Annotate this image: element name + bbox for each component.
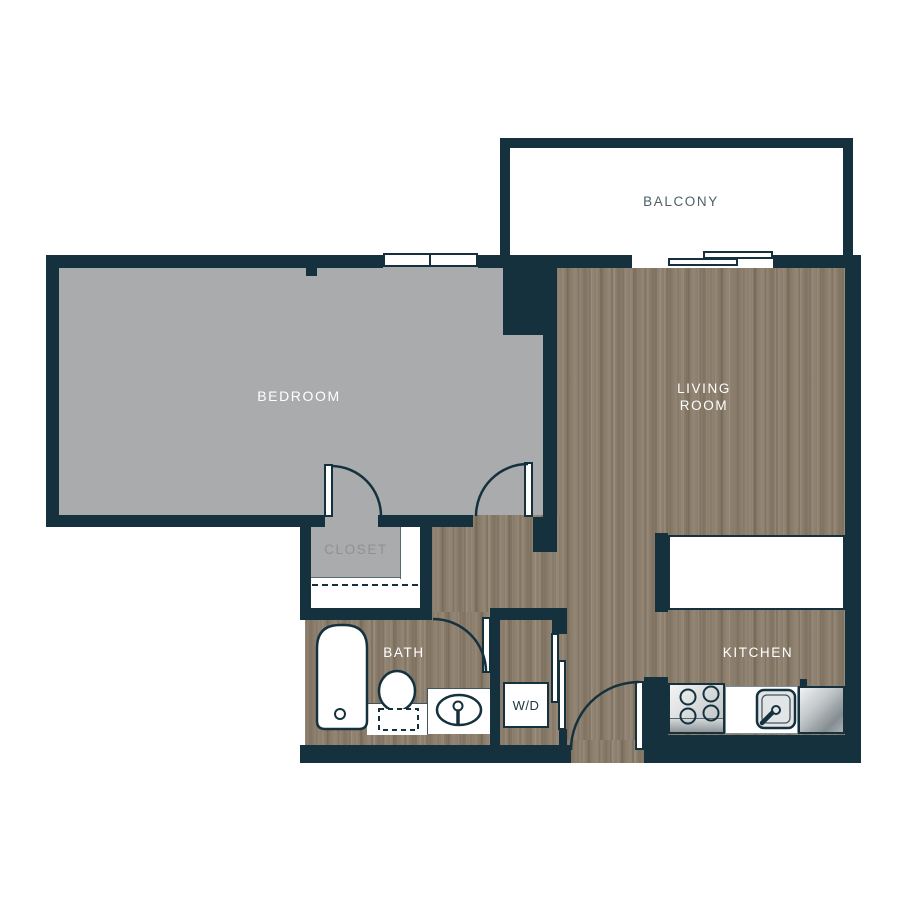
wall-bedroom-bottom-left	[46, 515, 325, 527]
living-room-label: LIVING ROOM	[644, 380, 764, 414]
closet-rod-dashed-line	[312, 584, 418, 586]
balcony-wall-right	[843, 148, 853, 256]
wall-nub	[306, 267, 317, 276]
kitchen-sink-counter	[725, 686, 798, 734]
balcony-wall-top	[500, 138, 853, 148]
balcony-slider-front-panel	[668, 258, 738, 266]
washer-dryer-box: W/D	[503, 682, 549, 728]
toilet-ledge	[367, 703, 427, 735]
closet-door-leaf	[324, 464, 333, 517]
wall-wd-right-upper-stub	[552, 618, 567, 634]
bath-label: BATH	[344, 645, 464, 660]
floorplan-canvas: W/D	[0, 0, 900, 900]
wall-divider	[543, 330, 557, 530]
entry-door-leaf	[635, 681, 644, 750]
refrigerator	[798, 686, 845, 734]
balcony-wall-left	[500, 138, 510, 257]
wall-divider-block	[503, 255, 557, 335]
wall-left	[46, 255, 59, 527]
bath-door-leaf	[482, 617, 491, 673]
wall-living-top-left-seg	[545, 255, 632, 268]
living-room-label-line1: LIVING	[644, 380, 764, 397]
wall-bottom-right	[644, 735, 861, 763]
living-room-floor	[545, 260, 855, 755]
stove-front-edge	[670, 718, 723, 732]
closet-label: CLOSET	[296, 542, 416, 557]
washer-dryer-label: W/D	[513, 698, 540, 713]
wall-bottom-left	[300, 745, 571, 763]
wall-wd-left	[490, 608, 500, 760]
wall-bath-top	[300, 608, 432, 620]
bedroom-label: BEDROOM	[219, 388, 379, 404]
kitchen-label: KITCHEN	[688, 645, 828, 660]
wall-counter-stub	[655, 533, 668, 612]
wall-closet-hall	[420, 524, 432, 608]
bedroom-door-leaf	[524, 462, 533, 517]
wall-right	[845, 255, 861, 763]
balcony-label: BALCONY	[591, 194, 771, 209]
bedroom-window	[383, 253, 478, 267]
living-room-label-line2: ROOM	[644, 397, 764, 414]
stove	[668, 683, 725, 734]
wall-closet-left	[300, 527, 311, 620]
wall-top-left	[46, 255, 383, 268]
closet-shelf	[311, 577, 420, 609]
breakfast-counter	[668, 535, 845, 610]
refrigerator-handle	[800, 679, 807, 686]
wall-divider-foot	[533, 517, 557, 552]
vanity-counter	[427, 688, 492, 734]
wd-bypass-door-panel-2	[558, 660, 566, 730]
